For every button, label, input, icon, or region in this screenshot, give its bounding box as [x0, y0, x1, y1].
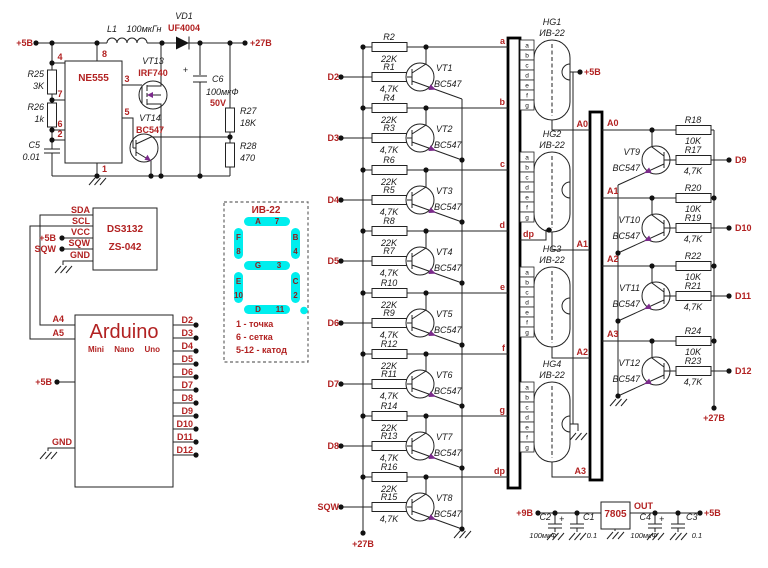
label-tubes-units-0-grid: A0	[576, 119, 588, 129]
label-drivers-stages-4-r_bot: R9	[383, 308, 395, 318]
label-arduino-dpins-4: D6	[181, 367, 193, 377]
resistor	[676, 126, 711, 135]
label-drivers-stages-3-vt: VT4	[436, 247, 453, 257]
label-rtc-vcc_label: +5В	[39, 233, 56, 243]
label-drivers-stages-5-r_bot_val: 4,7K	[380, 391, 400, 401]
label-drivers-stages-5-r_bot: R11	[381, 369, 397, 379]
junction-dot	[49, 97, 54, 102]
label-drivers-stages-3-r_bot_val: 4,7K	[380, 268, 400, 278]
label-drivers-stages-0-vt_val: BC547	[434, 79, 463, 89]
junction-dot	[158, 173, 163, 178]
resistor	[372, 196, 407, 205]
label-psu-c4: C4	[639, 512, 651, 522]
label-legend-notes-0: 1 - точка	[236, 319, 274, 329]
label-legend-segments-3-n: 3	[277, 261, 282, 270]
capacitor	[570, 524, 584, 528]
junction-dot	[193, 322, 198, 327]
label-arduino-dpins-2: D4	[181, 341, 193, 351]
ne555-label: NE555	[78, 73, 109, 84]
junction-dot	[227, 40, 232, 45]
wire	[48, 448, 75, 451]
junction-dot	[552, 510, 557, 515]
label-tubes-units-1-type: ИВ-22	[539, 140, 564, 150]
junction-dot	[54, 379, 59, 384]
label-tubes-pins-0: a	[525, 43, 529, 50]
label-boost-r27: R27	[240, 106, 258, 116]
label-boost-vt14_val: BC547	[136, 125, 164, 135]
label-boost-vd1: VD1	[175, 11, 193, 21]
label-boost-c5_val: 0.01	[22, 152, 40, 162]
label-grid_drivers-stages-3-vt: VT12	[618, 358, 640, 368]
label-boost-c6: C6	[212, 74, 224, 84]
ground-icon	[89, 178, 106, 185]
junction-dot	[193, 374, 198, 379]
label-arduino-dpins-6: D8	[181, 393, 193, 403]
label-drivers-stages-1-output: b	[500, 97, 506, 107]
junction-dot	[360, 105, 365, 110]
label-drivers-stages-4-output: e	[500, 282, 505, 292]
junction-dot	[459, 157, 464, 162]
label-boost-r25: R25	[27, 69, 45, 79]
label-arduino-gnd: GND	[52, 437, 73, 447]
label-grid_drivers-stages-2-output: D11	[735, 291, 751, 301]
label-psu-vout: +5В	[704, 508, 721, 518]
capacitor	[548, 524, 562, 528]
junction-dot	[193, 452, 198, 457]
junction-dot	[193, 400, 198, 405]
label-tubes-pins-0: a	[525, 155, 529, 162]
junction-dot	[197, 40, 202, 45]
junction-dot	[360, 530, 365, 535]
label-legend-segments-2-n: 4	[293, 247, 298, 256]
label-psu-c2: C2	[539, 512, 551, 522]
c2-plus: +	[559, 514, 564, 524]
resistor	[372, 104, 407, 113]
label-arduino-dpins-1: D3	[181, 328, 193, 338]
label-tubes-units-2-grid: A2	[576, 347, 588, 357]
label-grid_drivers-stages-1-r_bot_val: 4,7K	[684, 234, 704, 244]
ground-icon	[454, 531, 471, 538]
junction-dot	[360, 413, 365, 418]
junction-dot	[459, 526, 464, 531]
label-drivers-stages-3-output: d	[500, 220, 506, 230]
label-tubes-pins-4: e	[525, 310, 529, 317]
junction-dot	[227, 134, 232, 139]
junction-dot	[360, 474, 365, 479]
resistor	[372, 289, 407, 298]
label-rtc-ic: DS3132	[107, 224, 144, 235]
junction-dot	[577, 69, 582, 74]
label-psu-c3_val: 0.1	[692, 531, 702, 540]
label-tubes-units-3-grid: A3	[574, 466, 586, 476]
junction-dot	[49, 127, 54, 132]
junction-dot	[338, 135, 343, 140]
wire	[63, 261, 93, 265]
label-legend-notes-2: 5-12 - катод	[236, 345, 287, 355]
label-grid_drivers-stages-2-vt: VT11	[619, 283, 640, 293]
label-arduino-dpins-7: D9	[181, 406, 193, 416]
junction-dot	[360, 167, 365, 172]
junction-dot	[193, 387, 198, 392]
label-psu-c2_val: 100мкФ	[529, 531, 556, 540]
junction-dot	[726, 368, 731, 373]
label-legend-title: ИВ-22	[252, 205, 281, 216]
label-boost-vout: +27В	[250, 38, 272, 48]
label-boost-p4: 4	[57, 52, 62, 62]
label-drivers-rail: +27В	[352, 539, 374, 549]
r28-resistor	[226, 143, 235, 167]
r26-resistor	[48, 103, 57, 127]
junction-dot	[33, 40, 38, 45]
junction-dot	[338, 197, 343, 202]
label-tubes-pins-6: g	[525, 215, 529, 222]
label-arduino-variants: Mini Nano Uno	[88, 345, 160, 354]
junction-dot	[711, 405, 716, 410]
junction-dot	[649, 338, 654, 343]
label-rtc-pins-0: SDA	[71, 205, 91, 215]
label-grid_drivers-stages-3-r_bot_val: 4,7K	[684, 377, 704, 387]
label-psu-c4_val: 100мкФ	[630, 531, 657, 540]
junction-dot	[338, 504, 343, 509]
junction-dot	[423, 105, 428, 110]
junction-dot	[338, 258, 343, 263]
label-drivers-stages-0-r_bot: R1	[383, 62, 395, 72]
junction-dot	[649, 127, 654, 132]
label-boost-vt13: VT13	[142, 56, 164, 66]
ground-icon	[55, 266, 72, 273]
resistor	[372, 227, 407, 236]
label-drivers-stages-1-r_top: R4	[383, 93, 395, 103]
label-boost-r26: R26	[27, 102, 44, 112]
junction-dot	[574, 510, 579, 515]
label-tubes-pins-1: b	[525, 165, 529, 172]
resistor	[372, 473, 407, 482]
label-drivers-stages-1-vt_val: BC547	[434, 140, 463, 150]
label-legend-segments-2-l: B	[293, 233, 299, 242]
resistor	[676, 156, 711, 165]
label-rtc-pins-2: VCC	[71, 227, 91, 237]
junction-dot	[423, 413, 428, 418]
resistor	[676, 194, 711, 203]
junction-dot	[726, 225, 731, 230]
label-tubes-pins-5: f	[526, 205, 528, 212]
label-tubes-pins-6: g	[525, 445, 529, 452]
label-drivers-stages-3-input: D5	[327, 256, 339, 266]
junction-dot	[242, 40, 247, 45]
label-grid_drivers-stages-3-r_bot: R23	[685, 356, 702, 366]
label-drivers-stages-4-input: D6	[327, 318, 339, 328]
junction-dot	[148, 173, 153, 178]
label-drivers-stages-7-vt_val: BC547	[434, 509, 463, 519]
label-grid_drivers-stages-3-r_top: R24	[685, 326, 702, 336]
r27-resistor	[226, 108, 235, 132]
label-drivers-stages-3-vt_val: BC547	[434, 263, 463, 273]
label-grid_drivers-stages-0-vt: VT9	[623, 147, 640, 157]
label-arduino-a5: A5	[52, 328, 64, 338]
label-arduino-vcc: +5В	[35, 377, 52, 387]
label-drivers-stages-1-r_bot_val: 4,7K	[380, 145, 400, 155]
label-tubes-units-3-ref: HG4	[543, 359, 562, 369]
label-psu-c1: C1	[583, 512, 595, 522]
junction-dot	[459, 280, 464, 285]
arduino-title: Arduino	[90, 321, 159, 343]
junction-dot	[459, 342, 464, 347]
label-tubes-units-3-type: ИВ-22	[539, 370, 564, 380]
label-legend-segments-0-l: A	[255, 217, 261, 226]
display-dot	[300, 307, 308, 315]
junction-dot	[49, 137, 54, 142]
label-drivers-stages-6-input: D8	[327, 441, 339, 451]
label-boost-l1: L1	[107, 24, 117, 34]
label-tubes-pins-5: f	[526, 320, 528, 327]
display-segment	[244, 217, 290, 226]
label-boost-p7: 7	[57, 89, 62, 99]
resistor	[372, 503, 407, 512]
label-boost-c5: C5	[28, 140, 40, 150]
label-drivers-stages-3-r_top: R8	[383, 216, 395, 226]
segment-bus	[508, 38, 520, 488]
label-boost-l1_val: 100мкГн	[127, 24, 162, 34]
label-tubes-pins-3: d	[525, 73, 529, 80]
junction-dot	[615, 318, 620, 323]
label-boost-r26_val: 1k	[34, 114, 44, 124]
label-drivers-stages-4-vt_val: BC547	[434, 325, 463, 335]
label-grid_drivers-stages-1-vt_val: BC547	[612, 231, 641, 241]
label-grid_drivers-stages-0-r_top: R18	[685, 115, 702, 125]
label-tubes-units-1-grid: A1	[576, 239, 588, 249]
junction-dot	[49, 40, 54, 45]
label-rtc-sqw_label: SQW	[35, 244, 57, 254]
label-tubes-pins-1: b	[525, 53, 529, 60]
junction-dot	[546, 227, 551, 232]
label-tubes-units-2-ref: HG3	[543, 244, 562, 254]
junction-dot	[360, 290, 365, 295]
junction-dot	[423, 167, 428, 172]
label-grid_drivers-stages-3-input: A3	[607, 329, 619, 339]
label-drivers-stages-7-input: SQW	[318, 502, 340, 512]
resistor	[372, 257, 407, 266]
junction-dot	[675, 510, 680, 515]
label-boost-r28_val: 470	[240, 153, 255, 163]
label-grid_drivers-rail: +27В	[703, 413, 725, 423]
ground-icon	[607, 532, 624, 539]
resistor	[372, 380, 407, 389]
junction-dot	[423, 351, 428, 356]
junction-dot	[94, 40, 99, 45]
label-tubes-units-0-type: ИВ-22	[539, 28, 564, 38]
junction-dot	[338, 381, 343, 386]
label-grid_drivers-stages-2-vt_val: BC547	[612, 299, 641, 309]
c6-plus: +	[183, 65, 188, 75]
label-grid_drivers-stages-0-r_bot_val: 4,7K	[684, 166, 704, 176]
resistor	[676, 224, 711, 233]
label-legend-segments-5-n: 2	[293, 291, 298, 300]
label-drivers-stages-7-r_bot: R15	[381, 492, 399, 502]
resistor	[372, 350, 407, 359]
label-tubes-pins-4: e	[525, 83, 529, 90]
label-grid_drivers-stages-0-r_bot: R17	[685, 145, 703, 155]
label-drivers-stages-1-vt: VT2	[436, 124, 453, 134]
label-boost-r25_val: 3K	[33, 81, 45, 91]
label-grid_drivers-stages-1-vt: VT10	[618, 215, 640, 225]
capacitor	[671, 524, 685, 528]
label-drivers-stages-2-vt_val: BC547	[434, 202, 463, 212]
schematic-page: +5В+27ВL1100мкГнVD1UF4004NE55548762135R2…	[0, 0, 768, 568]
junction-dot	[193, 413, 198, 418]
label-tubes-pins-0: a	[525, 270, 529, 277]
junction-dot	[711, 338, 716, 343]
junction-dot	[423, 44, 428, 49]
label-arduino-dpins-8: D10	[176, 419, 193, 429]
label-drivers-stages-7-r_top: R16	[381, 462, 398, 472]
label-tubes-pins-1: b	[525, 395, 529, 402]
label-drivers-stages-0-output: a	[500, 36, 506, 46]
junction-dot	[159, 40, 164, 45]
label-rtc-pins-4: GND	[70, 250, 91, 260]
label-drivers-stages-4-r_top: R10	[381, 278, 398, 288]
resistor	[372, 43, 407, 52]
resistor	[676, 367, 711, 376]
label-drivers-stages-1-r_bot: R3	[383, 123, 395, 133]
resistor	[372, 134, 407, 143]
label-tubes-pins-5: f	[526, 435, 528, 442]
label-boost-p1: 1	[102, 164, 107, 174]
label-legend-segments-5-l: C	[293, 277, 299, 286]
label-drivers-stages-0-vt: VT1	[436, 63, 453, 73]
label-boost-vt14: VT14	[139, 113, 161, 123]
label-rtc-pins-3: SQW	[69, 238, 91, 248]
label-legend-segments-4-n: 10	[234, 291, 243, 300]
label-arduino-dpins-0: D2	[181, 315, 193, 325]
label-boost-p2: 2	[57, 129, 62, 139]
label-arduino-a4: A4	[52, 314, 64, 324]
label-drivers-stages-5-vt_val: BC547	[434, 386, 463, 396]
ground-icon	[40, 452, 57, 459]
c4-plus: +	[659, 514, 664, 524]
c6-capacitor	[193, 76, 207, 82]
label-legend-segments-1-l: F	[236, 233, 241, 242]
label-legend-notes-1: 6 - сетка	[236, 332, 274, 342]
junction-dot	[726, 157, 731, 162]
junction-dot	[338, 320, 343, 325]
label-drivers-stages-2-r_bot: R5	[383, 185, 395, 195]
label-grid_drivers-stages-2-r_bot_val: 4,7K	[684, 302, 704, 312]
capacitor	[648, 524, 662, 528]
junction-dot	[193, 426, 198, 431]
label-grid_drivers-stages-1-output: D10	[735, 223, 752, 233]
label-grid_drivers-stages-2-r_bot: R21	[685, 281, 702, 291]
junction-dot	[726, 293, 731, 298]
label-boost-c6_val: 100мкФ	[206, 87, 239, 97]
label-arduino-dpins-10: D12	[176, 445, 193, 455]
resistor	[372, 319, 407, 328]
label-drivers-stages-3-r_bot: R7	[383, 246, 395, 256]
resistor	[676, 262, 711, 271]
junction-dot	[711, 263, 716, 268]
label-psu-vin: +9В	[516, 508, 533, 518]
junction-dot	[459, 219, 464, 224]
label-drivers-stages-7-vt: VT8	[436, 493, 453, 503]
junction-dot	[338, 74, 343, 79]
label-arduino-dpins-3: D5	[181, 354, 193, 364]
label-tubes-pins-6: g	[525, 330, 529, 337]
grid-bus	[590, 112, 602, 480]
circuit-schematic: +5В+27ВL1100мкГнVD1UF4004NE55548762135R2…	[0, 0, 768, 568]
label-tubes-pins-1: b	[525, 280, 529, 287]
junction-dot	[360, 228, 365, 233]
label-arduino-dpins-9: D11	[177, 432, 193, 442]
junction-dot	[459, 465, 464, 470]
label-tubes-units-0-ref: HG1	[543, 17, 562, 27]
label-boost-p6: 6	[57, 119, 62, 129]
label-psu-c1_val: 0.1	[587, 531, 597, 540]
label-rtc-module: ZS-042	[109, 242, 142, 253]
r25-resistor	[48, 70, 57, 94]
label-tubes-pins-5: f	[526, 93, 528, 100]
ground-icon	[610, 399, 627, 406]
resistor	[372, 442, 407, 451]
junction-dot	[59, 235, 64, 240]
junction-dot	[360, 351, 365, 356]
label-drivers-stages-2-vt: VT3	[436, 186, 453, 196]
label-psu-c3: C3	[686, 512, 698, 522]
label-psu-reg: 7805	[604, 509, 627, 520]
label-drivers-stages-5-r_top: R12	[381, 339, 398, 349]
vd1-diode	[176, 37, 189, 50]
label-tubes-pins-3: d	[525, 300, 529, 307]
label-drivers-stages-6-r_top: R14	[381, 401, 398, 411]
label-drivers-stages-6-r_bot: R13	[381, 431, 398, 441]
label-drivers-stages-5-input: D7	[327, 379, 339, 389]
label-grid_drivers-stages-1-r_bot: R19	[685, 213, 702, 223]
label-grid_drivers-stages-0-input: A0	[607, 118, 619, 128]
label-grid_drivers-stages-3-vt_val: BC547	[612, 374, 641, 384]
junction-dot	[711, 195, 716, 200]
label-boost-vd1_val: UF4004	[168, 23, 200, 33]
label-legend-segments-6-n: 11	[276, 305, 285, 314]
label-tubes-dp: dp	[523, 229, 534, 239]
display-segment	[244, 261, 290, 270]
junction-dot	[197, 173, 202, 178]
label-tubes-pins-3: d	[525, 185, 529, 192]
junction-dot	[49, 60, 54, 65]
label-boost-r27_val: 18K	[240, 118, 257, 128]
label-grid_drivers-stages-2-r_top: R22	[685, 251, 702, 261]
label-legend-segments-0-n: 7	[275, 217, 280, 226]
junction-dot	[459, 403, 464, 408]
junction-dot	[59, 246, 64, 251]
label-tubes-pins-4: e	[525, 425, 529, 432]
label-drivers-stages-0-r_top: R2	[383, 32, 395, 42]
label-drivers-stages-4-vt: VT5	[436, 309, 454, 319]
junction-dot	[338, 443, 343, 448]
label-boost-p3: 3	[124, 74, 129, 84]
label-tubes-units-1-ref: HG2	[543, 129, 562, 139]
label-drivers-stages-5-output: f	[502, 343, 506, 353]
label-drivers-stages-2-input: D4	[327, 195, 339, 205]
label-drivers-stages-5-vt: VT6	[436, 370, 453, 380]
ground-icon	[570, 433, 587, 440]
resistor	[676, 292, 711, 301]
junction-dot	[652, 510, 657, 515]
label-boost-vin: +5В	[16, 38, 33, 48]
junction-dot	[697, 510, 702, 515]
label-arduino-dpins-5: D7	[181, 380, 193, 390]
label-boost-r28: R28	[240, 141, 257, 151]
label-legend-segments-4-l: E	[236, 277, 242, 286]
resistor	[372, 412, 407, 421]
junction-dot	[193, 439, 198, 444]
